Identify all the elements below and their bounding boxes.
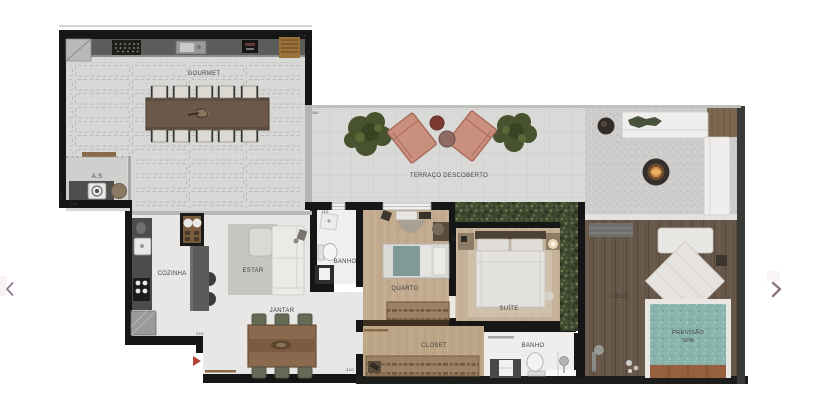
svg-text:110: 110	[321, 209, 329, 214]
svg-text:PREVISÃO: PREVISÃO	[672, 329, 704, 336]
svg-text:410: 410	[346, 367, 354, 372]
svg-text:QUARTO: QUARTO	[391, 286, 418, 292]
svg-text:178: 178	[298, 34, 305, 38]
svg-text:240: 240	[71, 203, 78, 207]
svg-text:210: 210	[196, 331, 204, 336]
svg-text:DECK: DECK	[611, 294, 629, 300]
svg-text:CLOSET: CLOSET	[421, 343, 447, 349]
svg-text:COZINHA: COZINHA	[157, 271, 186, 277]
svg-text:255: 255	[451, 234, 455, 241]
svg-text:SPA: SPA	[682, 338, 694, 344]
svg-text:240: 240	[60, 193, 64, 200]
svg-text:TERRAÇO DESCOBERTO: TERRAÇO DESCOBERTO	[410, 173, 488, 179]
svg-text:BANHO: BANHO	[522, 343, 545, 349]
svg-text:2: 2	[742, 109, 744, 113]
svg-text:GOURMET: GOURMET	[188, 71, 221, 77]
svg-text:JANTAR: JANTAR	[270, 308, 295, 314]
svg-text:ESTAR: ESTAR	[242, 268, 263, 274]
svg-text:BANHO: BANHO	[334, 259, 357, 265]
svg-text:160: 160	[311, 111, 318, 115]
svg-text:407: 407	[589, 370, 596, 374]
svg-text:A.S: A.S	[92, 174, 103, 180]
svg-text:SUÍTE: SUÍTE	[499, 305, 518, 312]
